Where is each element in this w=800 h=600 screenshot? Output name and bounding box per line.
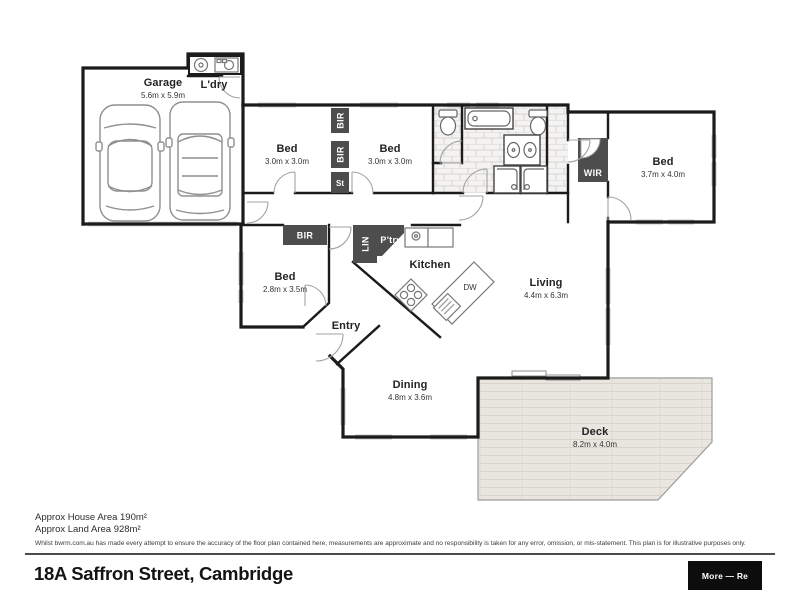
- land-area-text: Approx Land Area 928m²: [35, 524, 147, 536]
- room-dims-dining: 4.8m x 3.6m: [388, 393, 432, 402]
- disclaimer-text: Whilst bwrm.com.au has made every attemp…: [35, 540, 780, 547]
- room-dims-deck: 8.2m x 4.0m: [573, 440, 617, 449]
- room-dims-living: 4.4m x 6.3m: [524, 291, 568, 300]
- bathtub-icon: [465, 108, 513, 129]
- shower-icon-1: [494, 166, 520, 193]
- room-label-kitchen: Kitchen: [409, 259, 450, 271]
- room-label-garage: Garage: [144, 77, 183, 89]
- island-bench: [432, 262, 494, 324]
- house-area-text: Approx House Area 190m²: [35, 512, 147, 524]
- property-address: 18A Saffron Street, Cambridge: [34, 563, 293, 585]
- pantry-label: P'try: [380, 235, 401, 245]
- dw-label: DW: [463, 283, 477, 292]
- room-dims-bed1: 3.0m x 3.0m: [265, 157, 309, 166]
- st-label: St: [336, 179, 344, 188]
- deck-area: [478, 378, 712, 500]
- cooktop-icon: [395, 279, 427, 311]
- kitchen-counter: [428, 228, 453, 247]
- lin-label: LIN: [361, 236, 371, 251]
- floorplan-drawing: Garage 5.6m x 5.9m L'dry Bed 3.0m x 3.0m…: [0, 0, 800, 556]
- footer-divider: [25, 553, 775, 555]
- floorplan-page: Garage 5.6m x 5.9m L'dry Bed 3.0m x 3.0m…: [0, 0, 800, 600]
- shower-icon-2: [521, 166, 547, 193]
- laundry-fixtures: [189, 56, 241, 74]
- room-label-ldry: L'dry: [201, 79, 229, 91]
- room-label-living: Living: [530, 277, 563, 289]
- toilet-icon-1: [439, 110, 457, 135]
- area-summary: Approx House Area 190m² Approx Land Area…: [35, 512, 147, 536]
- room-label-bed1: Bed: [276, 143, 297, 155]
- bir-label-1: BIR: [336, 112, 346, 129]
- room-label-deck: Deck: [582, 426, 609, 438]
- car-icon-left: [96, 105, 164, 221]
- toilet-icon-2: [529, 110, 547, 135]
- car-icon-right: [166, 102, 234, 220]
- more-button[interactable]: More — Re: [688, 561, 762, 590]
- room-dims-bed2: 3.0m x 3.0m: [368, 157, 412, 166]
- wir-label: WIR: [584, 168, 603, 178]
- room-label-bed4: Bed: [274, 271, 295, 283]
- bir-label-bed4: BIR: [297, 231, 314, 241]
- room-dims-bed3: 3.7m x 4.0m: [641, 170, 685, 179]
- room-dims-bed4: 2.8m x 3.5m: [263, 285, 307, 294]
- room-label-entry: Entry: [332, 320, 361, 332]
- kitchen-fixtures: [395, 228, 494, 324]
- room-label-bed3: Bed: [652, 156, 673, 168]
- room-label-dining: Dining: [393, 379, 428, 391]
- bir-label-2: BIR: [336, 146, 346, 163]
- vanity-double-basin-icon: [504, 135, 540, 165]
- room-label-bed2: Bed: [379, 143, 400, 155]
- room-dims-garage: 5.6m x 5.9m: [141, 91, 185, 100]
